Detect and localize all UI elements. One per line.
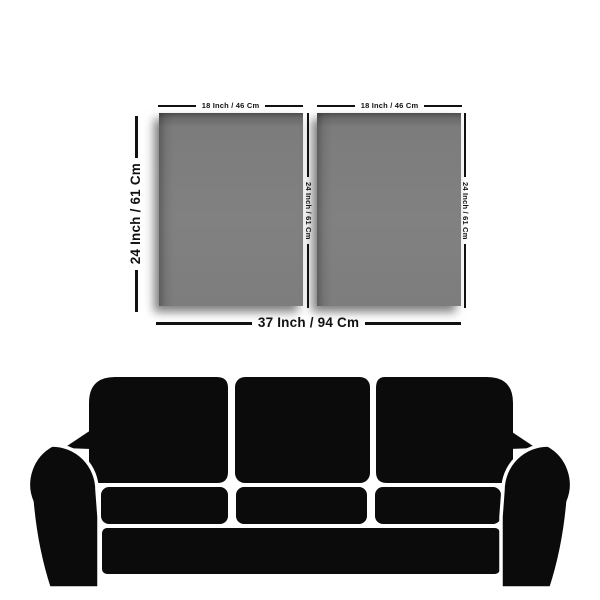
back-cushion-middle (235, 377, 370, 483)
dimension-line (265, 105, 303, 107)
panel2-width-label: 18 Inch / 46 Cm (361, 102, 419, 110)
panel1-width-label: 18 Inch / 46 Cm (202, 102, 260, 110)
sofa-arm-left (28, 445, 99, 588)
panel1-height-label: 24 Inch / 61 Cm (304, 182, 312, 240)
sofa-silhouette (0, 365, 600, 597)
overall-width-dimension: 37 Inch / 94 Cm (156, 314, 461, 332)
dimension-line (307, 244, 309, 308)
panel2-width-dimension: 18 Inch / 46 Cm (317, 99, 462, 113)
overall-width-label: 37 Inch / 94 Cm (258, 316, 359, 330)
back-cushion-right (376, 377, 513, 483)
dimension-line (158, 105, 196, 107)
dimension-line (365, 322, 461, 325)
back-cushion-left (89, 377, 228, 483)
seat-cushion-right (375, 487, 501, 524)
sofa-body (28, 377, 571, 588)
overall-height-dimension: 24 Inch / 61 Cm (127, 116, 145, 312)
dimension-line (424, 105, 462, 107)
canvas-panel-1 (159, 113, 303, 306)
dimension-line (317, 105, 355, 107)
sofa-arm-right (501, 445, 572, 588)
canvas-panel-2 (317, 113, 461, 306)
panel2-height-dimension: 24 Inch / 61 Cm (458, 113, 472, 308)
panel2-height-label: 24 Inch / 61 Cm (461, 182, 469, 240)
panel1-width-dimension: 18 Inch / 46 Cm (158, 99, 303, 113)
dimension-line (307, 113, 309, 177)
dimension-line (156, 322, 252, 325)
product-size-diagram: 18 Inch / 46 Cm 18 Inch / 46 Cm 24 Inch … (0, 0, 600, 600)
dimension-line (135, 270, 138, 312)
panel1-height-dimension: 24 Inch / 61 Cm (301, 113, 315, 308)
dimension-line (135, 116, 138, 158)
dimension-line (464, 244, 466, 308)
overall-height-label: 24 Inch / 61 Cm (129, 163, 143, 264)
sofa-base (102, 528, 500, 574)
seat-cushion-left (101, 487, 228, 524)
seat-cushion-middle (236, 487, 367, 524)
dimension-line (464, 113, 466, 177)
